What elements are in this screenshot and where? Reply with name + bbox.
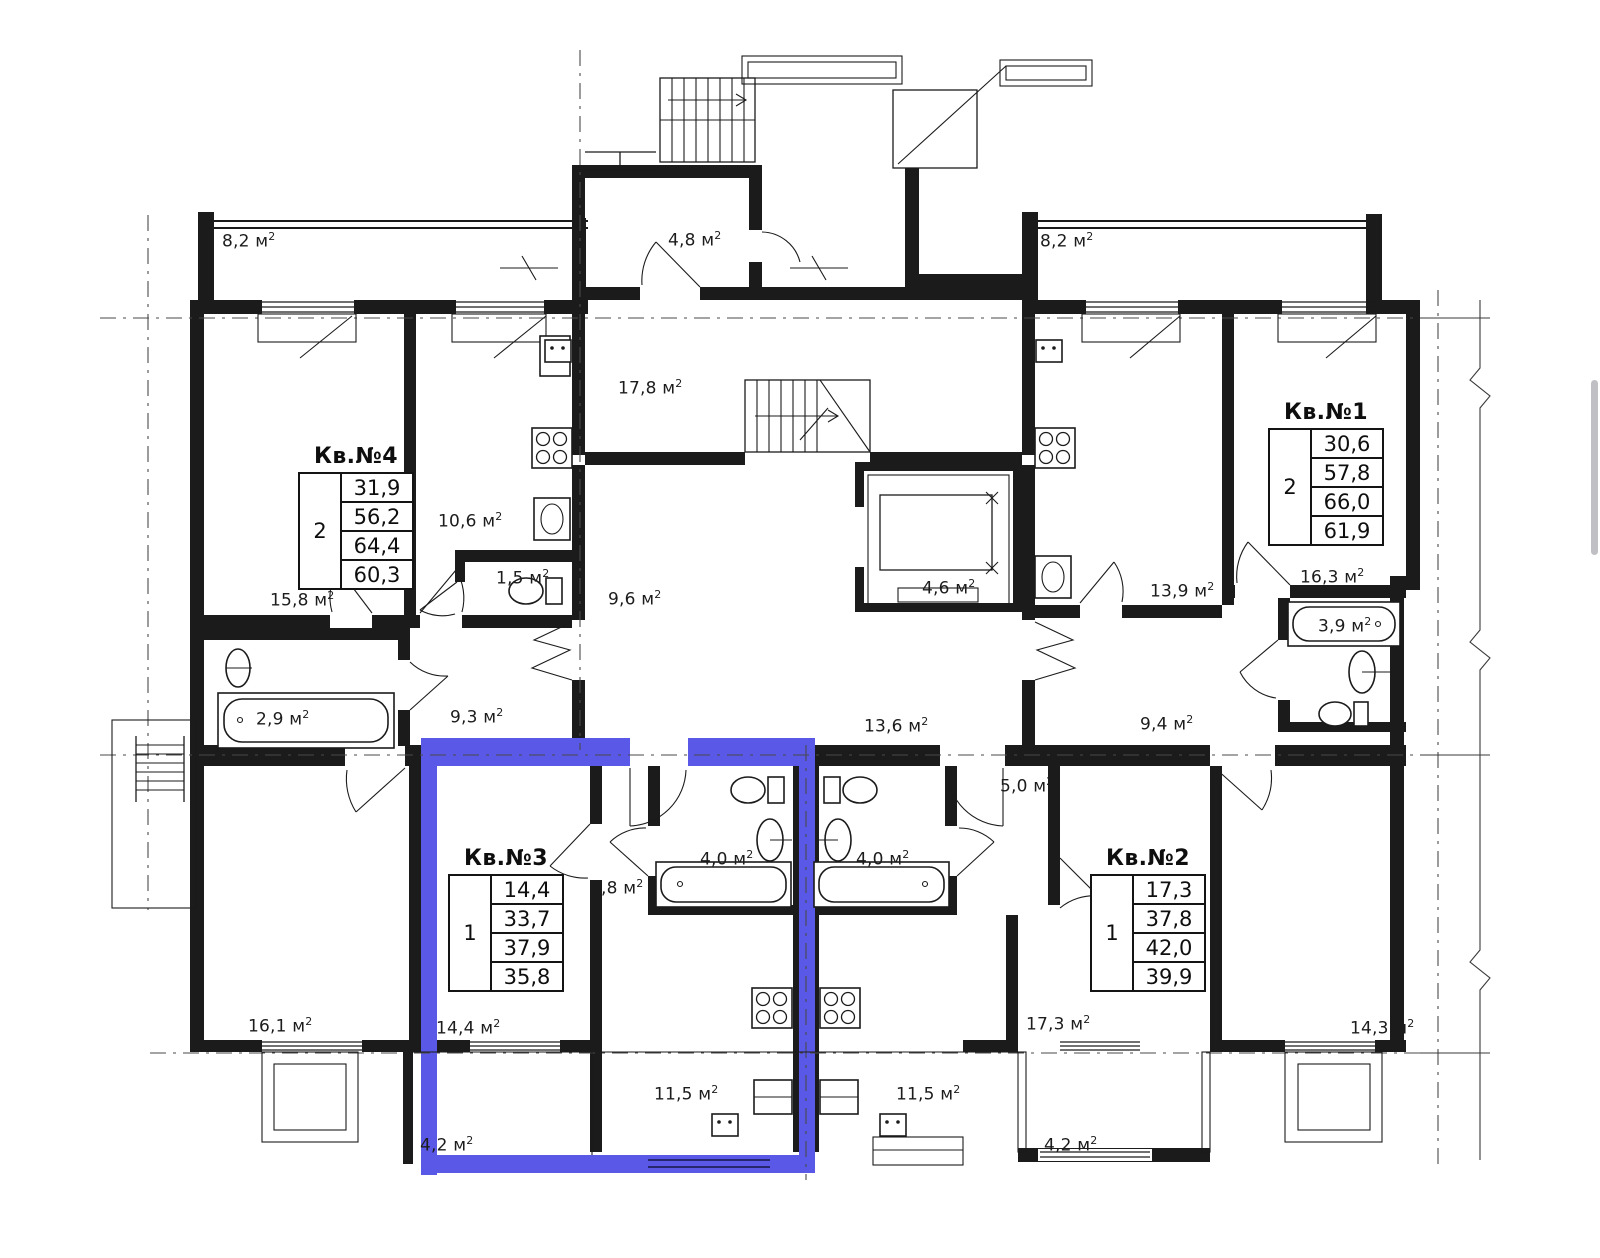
area-label-kitchen-kv2: 11,5 м2 [896, 1083, 960, 1105]
area-label-room2-kv4: 16,1 м2 [248, 1015, 312, 1037]
apartment-card-kv2[interactable]: Кв.№2 1 17,3 37,8 42,0 39,9 [1090, 846, 1206, 992]
area-label-corridor-kv1: 9,4 м2 [1140, 713, 1193, 735]
area-label-corridor-kv4: 9,3 м2 [450, 706, 503, 728]
window-bottom-2 [470, 1042, 560, 1050]
area-value: 37,9 [491, 933, 563, 962]
window-bottom-1 [262, 1042, 362, 1050]
area-value: 57,8 [1311, 458, 1383, 487]
area-label-balcony-top-right: 8,2 м2 [1040, 230, 1093, 252]
area-value: 64,4 [341, 531, 413, 560]
area-label-room2-kv1: 14,3 м2 [1350, 1017, 1414, 1039]
area-value: 17,3 [1133, 875, 1205, 904]
area-label-hall-kv2: 5,0 м2 [1000, 775, 1053, 797]
window-top-4 [1282, 302, 1374, 312]
area-label-room-kv1: 16,3 м2 [1300, 566, 1364, 588]
area-label-balcony-top-left: 8,2 м2 [222, 230, 275, 252]
area-label-bath-kv2: 4,0 м2 [856, 848, 909, 870]
window-bottom-4 [1285, 1042, 1375, 1050]
room-count: 2 [299, 473, 341, 589]
room-count: 1 [449, 875, 491, 991]
area-value: 56,2 [341, 502, 413, 531]
apartment-title-kv2: Кв.№2 [1090, 846, 1206, 871]
area-label-wc-kv4: 1,5 м2 [496, 567, 549, 589]
area-label-kitchen-kv3: 11,5 м2 [654, 1083, 718, 1105]
apartment-title-kv4: Кв.№4 [298, 444, 414, 469]
window-top-2 [456, 302, 544, 312]
area-value: 33,7 [491, 904, 563, 933]
area-value: 42,0 [1133, 933, 1205, 962]
entrance-porch [585, 56, 1092, 170]
staircase [745, 380, 870, 452]
window-top-3 [1086, 302, 1178, 312]
area-value: 31,9 [341, 473, 413, 502]
room-count: 2 [1269, 429, 1311, 545]
area-label-kitchen-kv1: 13,9 м2 [1150, 580, 1214, 602]
area-label-kitchen-kv4: 10,6 м2 [438, 510, 502, 532]
area-value: 14,4 [491, 875, 563, 904]
apartment-card-kv4[interactable]: Кв.№4 2 31,9 56,2 64,4 60,3 [298, 444, 414, 590]
area-label-stair-hall: 17,8 м2 [618, 377, 682, 399]
apartment-areas-table-kv1: 2 30,6 57,8 66,0 61,9 [1268, 428, 1384, 546]
apartment-title-kv1: Кв.№1 [1268, 400, 1384, 425]
area-label-bath-kv1: 3,9 м2 [1318, 615, 1371, 637]
entrance-stairs [660, 78, 755, 162]
apartment-card-kv3[interactable]: Кв.№3 1 14,4 33,7 37,9 35,8 [448, 846, 564, 992]
fire-escape-ladder [112, 720, 196, 908]
area-value: 60,3 [341, 560, 413, 589]
apartment-areas-table-kv2: 1 17,3 37,8 42,0 39,9 [1090, 874, 1206, 992]
area-value: 39,9 [1133, 962, 1205, 991]
area-value: 37,8 [1133, 904, 1205, 933]
area-label-bath-kv3: 4,0 м2 [700, 848, 753, 870]
area-label-room-kv2: 17,3 м2 [1026, 1013, 1090, 1035]
apartment-title-kv3: Кв.№3 [448, 846, 564, 871]
area-value: 66,0 [1311, 487, 1383, 516]
area-value: 30,6 [1311, 429, 1383, 458]
window-top-1 [262, 302, 354, 312]
area-label-corridor-common: 13,6 м2 [864, 715, 928, 737]
area-label-room-kv3: 14,4 м2 [436, 1017, 500, 1039]
apartment-areas-table-kv3: 1 14,4 33,7 37,9 35,8 [448, 874, 564, 992]
floorplan-page: 8,2 м2 4,8 м2 8,2 м2 17,8 м2 10,6 м2 1,5… [0, 0, 1600, 1258]
area-label-bath-kv4: 2,9 м2 [256, 708, 309, 730]
window-bottom-3 [1060, 1042, 1140, 1050]
apartment-areas-table-kv4: 2 31,9 56,2 64,4 60,3 [298, 472, 414, 590]
area-value: 61,9 [1311, 516, 1383, 545]
area-value: 35,8 [491, 962, 563, 991]
break-lines [1420, 300, 1490, 1160]
area-label-hall-kv3: 3,8 м2 [590, 877, 643, 899]
entrance-ramp [893, 66, 1006, 168]
area-label-loggia-kv2: 4,2 м2 [1044, 1134, 1097, 1156]
area-label-tambour: 4,8 м2 [668, 229, 721, 251]
area-label-room-kv4: 15,8 м2 [270, 589, 334, 611]
scrollbar-thumb[interactable] [1591, 380, 1598, 555]
apartment-card-kv1[interactable]: Кв.№1 2 30,6 57,8 66,0 61,9 [1268, 400, 1384, 546]
room-count: 1 [1091, 875, 1133, 991]
area-label-lobby: 9,6 м2 [608, 588, 661, 610]
area-label-elevator: 4,6 м2 [922, 577, 975, 599]
area-label-loggia-kv3: 4,2 м2 [420, 1134, 473, 1156]
